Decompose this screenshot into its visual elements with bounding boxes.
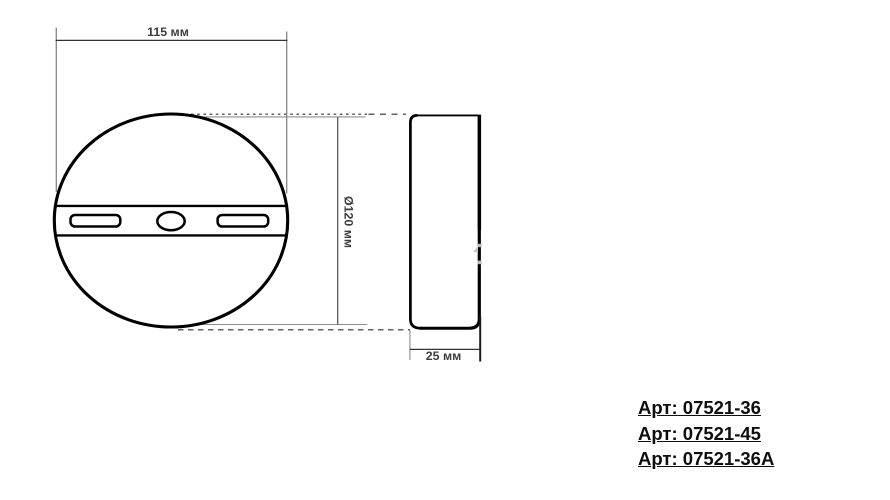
svg-text:Ø120 мм: Ø120 мм [341,196,355,248]
svg-text:115 мм: 115 мм [147,25,189,39]
svg-text:25 мм: 25 мм [426,349,462,363]
